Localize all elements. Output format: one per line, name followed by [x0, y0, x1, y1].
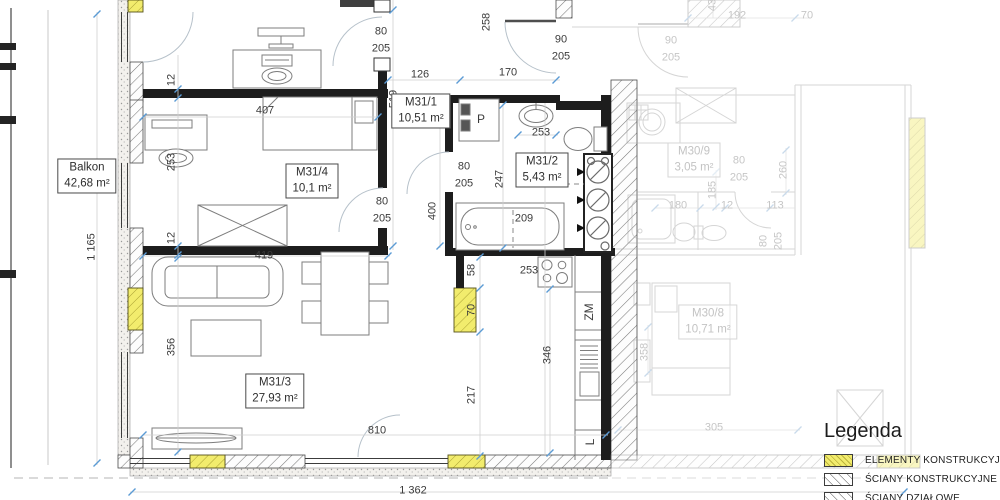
dim-12-bottom: 12	[167, 232, 178, 244]
dim-305: 305	[705, 423, 723, 434]
door-neighbor-room-width: 80	[759, 235, 770, 247]
dim-258: 258	[482, 13, 493, 31]
door-neighbor-room-height: 205	[774, 232, 785, 250]
door-width: 80	[372, 24, 390, 41]
room-area-m30-8: 10,71 m²	[685, 322, 730, 338]
dim-12-neighbor: 12	[721, 201, 733, 212]
room-label-m31-2: M31/2 5,43 m²	[516, 152, 569, 187]
room-label-m31-3: M31/3 27,93 m²	[245, 373, 304, 408]
dim-253-sink: 253	[532, 128, 550, 139]
dim-810: 810	[368, 426, 386, 437]
room-area-m31-3: 27,93 m²	[252, 391, 297, 407]
room-area-m31-4: 10,1 m²	[293, 181, 332, 197]
room-area-m31-1: 10,51 m²	[398, 111, 443, 127]
balcony-label: Balkon 42,68 m²	[57, 158, 116, 193]
dim-407: 407	[256, 106, 274, 117]
door-height: 205	[372, 40, 390, 57]
balcony-name: Balkon	[64, 160, 109, 176]
door-label-bedroom-top: 80 205	[372, 24, 390, 57]
room-name-m30-9: M30/9	[675, 144, 714, 160]
balcony-area: 42,68 m²	[64, 176, 109, 192]
dim-total-width: 1 362	[399, 486, 427, 497]
legend-item-structural-elements: ELEMENTY KONSTRUKCYJNE	[824, 454, 1000, 467]
door-height: 205	[662, 49, 680, 66]
dim-170: 170	[499, 68, 517, 79]
door-label-neighbor-bath: 80 205	[730, 153, 748, 186]
legend-item-label: ŚCIANY KONSTRUKCYJNE	[865, 474, 997, 485]
diagonal-hatch-swatch	[824, 492, 853, 500]
door-label-bathroom: 80 205	[455, 159, 473, 192]
dim-12-top: 12	[167, 74, 178, 86]
dim-217: 217	[467, 386, 478, 404]
door-height: 205	[552, 48, 570, 65]
door-width: 80	[730, 153, 748, 170]
door-width: 90	[552, 32, 570, 49]
dim-209-tub: 209	[515, 214, 533, 225]
legend-item-structural-walls: ŚCIANY KONSTRUKCYJNE	[824, 473, 997, 486]
dim-260: 260	[779, 161, 790, 179]
legend: Legenda ELEMENTY KONSTRUKCYJNE ŚCIANY KO…	[820, 418, 1000, 500]
door-height: 205	[373, 210, 391, 227]
dishwasher-label: ZM	[583, 303, 595, 320]
door-height: 205	[455, 175, 473, 192]
legend-item-partition-walls: ŚCIANY DZIAŁOWE	[824, 492, 960, 500]
dim-180: 180	[669, 201, 687, 212]
dim-70-neighbor: 70	[801, 11, 813, 22]
dim-400: 400	[428, 202, 439, 220]
dim-70: 70	[467, 304, 478, 316]
door-width: 90	[662, 33, 680, 50]
door-label-entry: 90 205	[552, 32, 570, 65]
diagonal-hatch-swatch	[824, 473, 853, 486]
door-label-m31-4: 80 205	[373, 194, 391, 227]
room-label-m31-1: M31/1 10,51 m²	[391, 93, 450, 128]
yellow-hatch-swatch	[824, 454, 853, 467]
room-name-m31-1: M31/1	[398, 95, 443, 111]
dim-356: 356	[167, 338, 178, 356]
room-name-m31-3: M31/3	[252, 375, 297, 391]
dim-419: 419	[255, 251, 273, 262]
dim-346: 346	[543, 346, 554, 364]
door-width: 80	[455, 159, 473, 176]
washing-machine-label: P	[477, 113, 485, 125]
dim-253-stove: 253	[520, 266, 538, 277]
floor-plan-viewport: Balkon 42,68 m² 1 165 12 253 12 407 M31/…	[0, 0, 1000, 500]
legend-item-label: ŚCIANY DZIAŁOWE	[865, 493, 960, 500]
door-label-neighbor-entry: 90 205	[662, 33, 680, 66]
room-label-m30-8: M30/8 10,71 m²	[678, 304, 737, 339]
dim-247: 247	[495, 170, 506, 188]
door-height: 205	[730, 169, 748, 186]
dim-192: 192	[728, 11, 746, 22]
room-name-m30-8: M30/8	[685, 306, 730, 322]
room-area-m30-9: 3,05 m²	[675, 160, 714, 176]
dim-113: 113	[766, 201, 784, 212]
dim-43-clipped: 43	[708, 0, 719, 11]
dim-185: 185	[708, 181, 719, 199]
room-label-m30-9: M30/9 3,05 m²	[668, 142, 721, 177]
dim-253-room: 253	[167, 153, 178, 171]
room-label-m31-4: M31/4 10,1 m²	[286, 163, 339, 198]
room-name-m31-2: M31/2	[523, 154, 562, 170]
legend-item-label: ELEMENTY KONSTRUKCYJNE	[865, 455, 1000, 466]
dim-58: 58	[467, 264, 478, 276]
dim-balcony-length: 1 165	[87, 233, 98, 261]
dim-358: 358	[640, 343, 651, 361]
dim-126: 126	[411, 70, 429, 81]
door-width: 80	[373, 194, 391, 211]
room-name-m31-4: M31/4	[293, 165, 332, 181]
legend-title: Legenda	[824, 420, 902, 443]
fridge-label: L	[584, 439, 596, 446]
room-area-m31-2: 5,43 m²	[523, 170, 562, 186]
